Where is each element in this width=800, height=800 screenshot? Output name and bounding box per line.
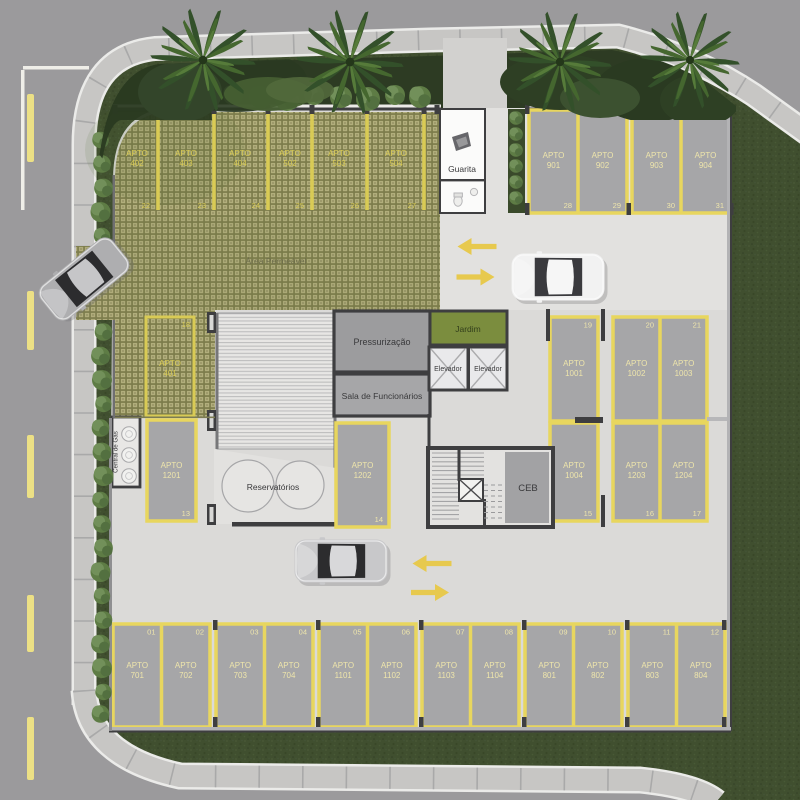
svg-text:APTO: APTO bbox=[673, 359, 695, 368]
svg-text:Reservatórios: Reservatórios bbox=[247, 482, 299, 492]
svg-text:904: 904 bbox=[699, 161, 713, 170]
svg-text:APTO: APTO bbox=[543, 151, 565, 160]
svg-text:APTO: APTO bbox=[352, 461, 374, 470]
svg-text:CEB: CEB bbox=[518, 483, 538, 494]
svg-text:26: 26 bbox=[351, 201, 359, 210]
svg-text:403: 403 bbox=[179, 159, 193, 168]
svg-text:04: 04 bbox=[299, 628, 307, 637]
svg-text:1003: 1003 bbox=[675, 369, 693, 378]
svg-text:APTO: APTO bbox=[279, 149, 301, 158]
svg-text:902: 902 bbox=[596, 161, 610, 170]
svg-text:Elevador: Elevador bbox=[474, 366, 502, 373]
svg-text:31: 31 bbox=[716, 201, 724, 210]
svg-text:1201: 1201 bbox=[163, 471, 181, 480]
svg-text:22: 22 bbox=[142, 201, 150, 210]
svg-text:18: 18 bbox=[182, 320, 190, 329]
svg-text:27: 27 bbox=[408, 201, 416, 210]
svg-text:Área Permeável: Área Permeável bbox=[246, 256, 307, 266]
svg-text:APTO: APTO bbox=[646, 151, 668, 160]
svg-text:17: 17 bbox=[693, 509, 701, 518]
svg-text:804: 804 bbox=[694, 671, 708, 680]
svg-text:APTO: APTO bbox=[690, 661, 712, 670]
svg-text:APTO: APTO bbox=[175, 661, 197, 670]
svg-text:14: 14 bbox=[375, 515, 383, 524]
svg-text:APTO: APTO bbox=[592, 151, 614, 160]
svg-text:Elevador: Elevador bbox=[434, 366, 462, 373]
svg-text:702: 702 bbox=[179, 671, 193, 680]
svg-text:APTO: APTO bbox=[626, 359, 648, 368]
svg-text:12: 12 bbox=[711, 628, 719, 637]
svg-text:APTO: APTO bbox=[484, 661, 506, 670]
svg-text:30: 30 bbox=[667, 201, 675, 210]
svg-text:1004: 1004 bbox=[565, 471, 583, 480]
svg-text:APTO: APTO bbox=[126, 661, 148, 670]
svg-text:701: 701 bbox=[131, 671, 145, 680]
svg-text:APTO: APTO bbox=[563, 461, 585, 470]
svg-text:20: 20 bbox=[646, 321, 654, 330]
svg-text:APTO: APTO bbox=[435, 661, 457, 670]
svg-text:1102: 1102 bbox=[383, 671, 401, 680]
svg-text:1104: 1104 bbox=[486, 671, 504, 680]
svg-text:APTO: APTO bbox=[695, 151, 717, 160]
svg-text:803: 803 bbox=[646, 671, 660, 680]
svg-text:APTO: APTO bbox=[175, 149, 197, 158]
svg-text:802: 802 bbox=[591, 671, 605, 680]
svg-text:Guarita: Guarita bbox=[448, 164, 476, 174]
svg-text:15: 15 bbox=[584, 509, 592, 518]
svg-text:Central de Gás: Central de Gás bbox=[113, 431, 120, 473]
svg-text:APTO: APTO bbox=[563, 359, 585, 368]
svg-text:1001: 1001 bbox=[565, 369, 583, 378]
svg-text:1103: 1103 bbox=[438, 671, 456, 680]
svg-text:APTO: APTO bbox=[673, 461, 695, 470]
svg-text:903: 903 bbox=[650, 161, 664, 170]
svg-text:1204: 1204 bbox=[675, 471, 693, 480]
svg-text:13: 13 bbox=[182, 509, 190, 518]
svg-text:APTO: APTO bbox=[538, 661, 560, 670]
svg-text:Sala de Funcionários: Sala de Funcionários bbox=[342, 391, 423, 401]
svg-text:25: 25 bbox=[296, 201, 304, 210]
svg-text:02: 02 bbox=[196, 628, 204, 637]
svg-text:APTO: APTO bbox=[161, 461, 183, 470]
svg-text:801: 801 bbox=[543, 671, 557, 680]
svg-text:901: 901 bbox=[547, 161, 561, 170]
svg-text:APTO: APTO bbox=[278, 661, 300, 670]
svg-text:402: 402 bbox=[130, 159, 144, 168]
svg-text:APTO: APTO bbox=[229, 149, 251, 158]
svg-text:1002: 1002 bbox=[628, 369, 646, 378]
svg-text:29: 29 bbox=[613, 201, 621, 210]
svg-text:1202: 1202 bbox=[354, 471, 372, 480]
svg-text:05: 05 bbox=[353, 628, 361, 637]
svg-text:11: 11 bbox=[663, 628, 671, 637]
svg-text:01: 01 bbox=[147, 628, 155, 637]
svg-text:504: 504 bbox=[389, 159, 403, 168]
svg-text:Jardim: Jardim bbox=[455, 324, 481, 334]
svg-text:07: 07 bbox=[456, 628, 464, 637]
svg-text:APTO: APTO bbox=[159, 359, 181, 368]
svg-text:APTO: APTO bbox=[126, 149, 148, 158]
svg-text:23: 23 bbox=[198, 201, 206, 210]
svg-text:Pressurização: Pressurização bbox=[353, 337, 410, 347]
svg-text:19: 19 bbox=[584, 321, 592, 330]
svg-text:03: 03 bbox=[250, 628, 258, 637]
svg-text:APTO: APTO bbox=[641, 661, 663, 670]
svg-text:703: 703 bbox=[234, 671, 248, 680]
svg-text:404: 404 bbox=[233, 159, 247, 168]
svg-text:08: 08 bbox=[505, 628, 513, 637]
svg-text:APTO: APTO bbox=[328, 149, 350, 158]
svg-text:24: 24 bbox=[252, 201, 260, 210]
svg-text:401: 401 bbox=[163, 369, 177, 378]
svg-text:APTO: APTO bbox=[332, 661, 354, 670]
svg-text:704: 704 bbox=[282, 671, 296, 680]
svg-text:10: 10 bbox=[608, 628, 616, 637]
svg-text:09: 09 bbox=[559, 628, 567, 637]
svg-text:1203: 1203 bbox=[628, 471, 646, 480]
svg-text:APTO: APTO bbox=[587, 661, 609, 670]
svg-text:503: 503 bbox=[332, 159, 346, 168]
svg-text:APTO: APTO bbox=[381, 661, 403, 670]
svg-text:APTO: APTO bbox=[385, 149, 407, 158]
svg-text:28: 28 bbox=[564, 201, 572, 210]
svg-text:1101: 1101 bbox=[335, 671, 353, 680]
svg-text:APTO: APTO bbox=[229, 661, 251, 670]
svg-text:16: 16 bbox=[646, 509, 654, 518]
svg-text:APTO: APTO bbox=[626, 461, 648, 470]
svg-text:21: 21 bbox=[693, 321, 701, 330]
svg-text:502: 502 bbox=[283, 159, 297, 168]
svg-text:06: 06 bbox=[402, 628, 410, 637]
